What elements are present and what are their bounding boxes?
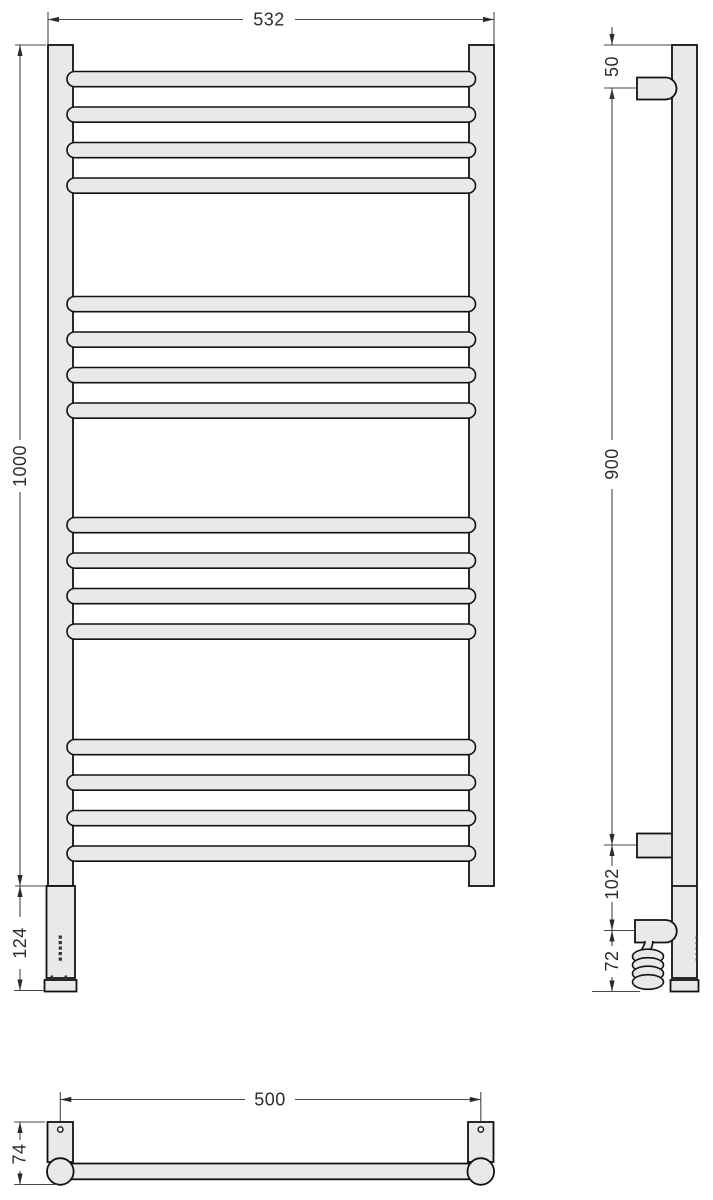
front-bottom-cap [45, 980, 77, 992]
arrowhead-down [609, 981, 614, 992]
rung [67, 624, 476, 639]
towel-rail-technical-drawing: 532 1000 124 50 900 [0, 0, 713, 1200]
front-bottom-section-dimension-label: 124 [10, 927, 30, 959]
arrowhead-left [48, 17, 59, 22]
side-outlet-offset-dimension-label: 102 [602, 868, 622, 900]
rung [67, 846, 476, 861]
plan-mount-spacing-dimension-label: 500 [254, 1090, 286, 1110]
rung [67, 553, 476, 568]
arrowhead-up [17, 45, 22, 56]
arrowhead-down [609, 834, 614, 845]
rung [67, 811, 476, 826]
side-upper-wall-bracket [637, 78, 677, 100]
plan-horizontal-tube [60, 1164, 481, 1180]
rung [67, 72, 476, 87]
arrowhead-up [17, 886, 22, 897]
rung [67, 518, 476, 533]
side-view [633, 45, 699, 992]
front-height-dimension-label: 1000 [10, 445, 30, 487]
front-view [45, 45, 495, 992]
plan-left-post-circle [47, 1158, 74, 1185]
arrowhead-down [17, 1174, 22, 1185]
rung [67, 143, 476, 158]
front-width-dimension-label: 532 [253, 10, 285, 30]
arrowhead-right [483, 17, 494, 22]
plan-right-screw-hole [478, 1127, 483, 1132]
rung [67, 589, 476, 604]
rung [67, 107, 476, 122]
front-heater-housing [47, 886, 76, 978]
rung [67, 332, 476, 347]
arrowhead-right [470, 1097, 481, 1102]
technical-drawing-page: 532 1000 124 50 900 [0, 0, 713, 1200]
front-right-post [469, 45, 494, 886]
rung [67, 775, 476, 790]
side-power-outlet-box [635, 920, 677, 943]
arrowhead-left [60, 1097, 71, 1102]
side-bracket-spacing-dimension-label: 900 [602, 448, 622, 480]
arrowhead-up [609, 931, 614, 942]
side-top-offset-dimension-label: 50 [602, 56, 622, 77]
rung [67, 403, 476, 418]
side-vertical-post [672, 45, 697, 978]
arrowhead-down [609, 920, 614, 931]
arrowhead-down [17, 980, 22, 991]
arrowhead-down [17, 875, 22, 886]
rung [67, 178, 476, 193]
plan-right-post-circle [468, 1158, 495, 1185]
plan-left-screw-hole [58, 1127, 63, 1132]
rung [67, 368, 476, 383]
plan-view [47, 1122, 494, 1185]
arrowhead-up [609, 845, 614, 856]
rung [67, 740, 476, 755]
arrowhead-down [609, 34, 614, 45]
plan-depth-dimension-label: 74 [10, 1143, 30, 1164]
side-bottom-cap [671, 980, 699, 992]
rung [67, 297, 476, 312]
front-left-post [48, 45, 73, 886]
side-bottom-offset-dimension-label: 72 [602, 950, 622, 971]
arrowhead-up [17, 1122, 22, 1133]
side-lower-wall-bracket [637, 834, 674, 858]
spiral-power-cable [633, 941, 664, 989]
